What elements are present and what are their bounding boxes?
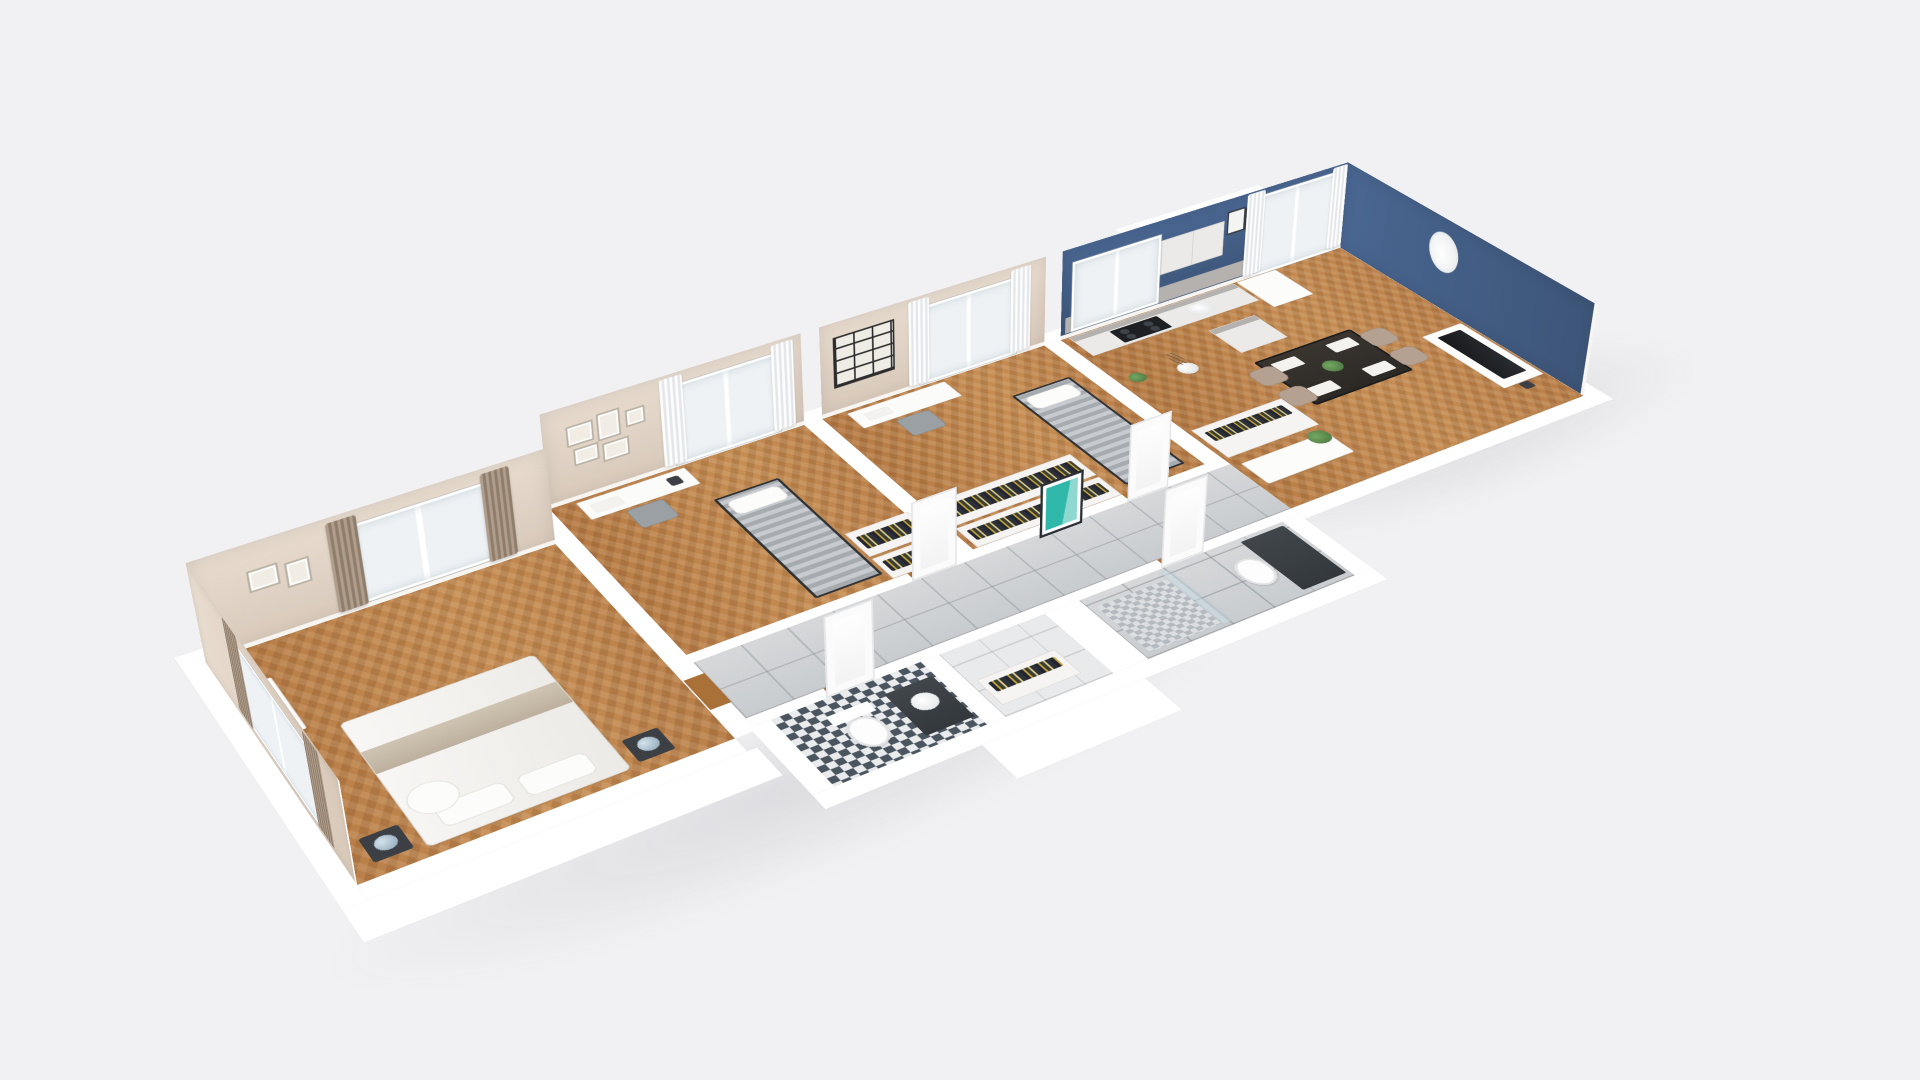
curtain-white-right <box>1010 264 1031 353</box>
table-centerpiece <box>1317 358 1348 373</box>
placemat <box>1325 337 1360 353</box>
door-bedroom3 <box>1127 410 1172 502</box>
balcony-door <box>1250 171 1339 277</box>
wall-art-frame <box>246 562 281 593</box>
gallery-frame <box>625 405 646 428</box>
apartment-3d-floorplan <box>153 236 1687 973</box>
hanging-clothes <box>1204 405 1293 441</box>
frame-grid <box>833 319 895 389</box>
wall-clock <box>1429 227 1459 277</box>
kitchen-upper-cabinets <box>1160 221 1225 276</box>
wall-art-frame-dark <box>1226 206 1245 235</box>
curtain-white-left <box>908 296 929 387</box>
gallery-frame <box>573 442 600 467</box>
floorplan-stage <box>0 0 1920 1080</box>
desk-items <box>864 407 893 420</box>
curtain-white-right <box>771 339 796 431</box>
wall-art-frame <box>284 556 313 589</box>
vanity-sink <box>905 689 944 713</box>
door-bedroom2 <box>911 486 957 581</box>
desk-lantern <box>665 475 684 486</box>
placemat <box>1361 360 1397 376</box>
gallery-frame <box>596 407 622 441</box>
gallery-frame <box>602 435 630 462</box>
desk-magazines <box>591 496 625 512</box>
